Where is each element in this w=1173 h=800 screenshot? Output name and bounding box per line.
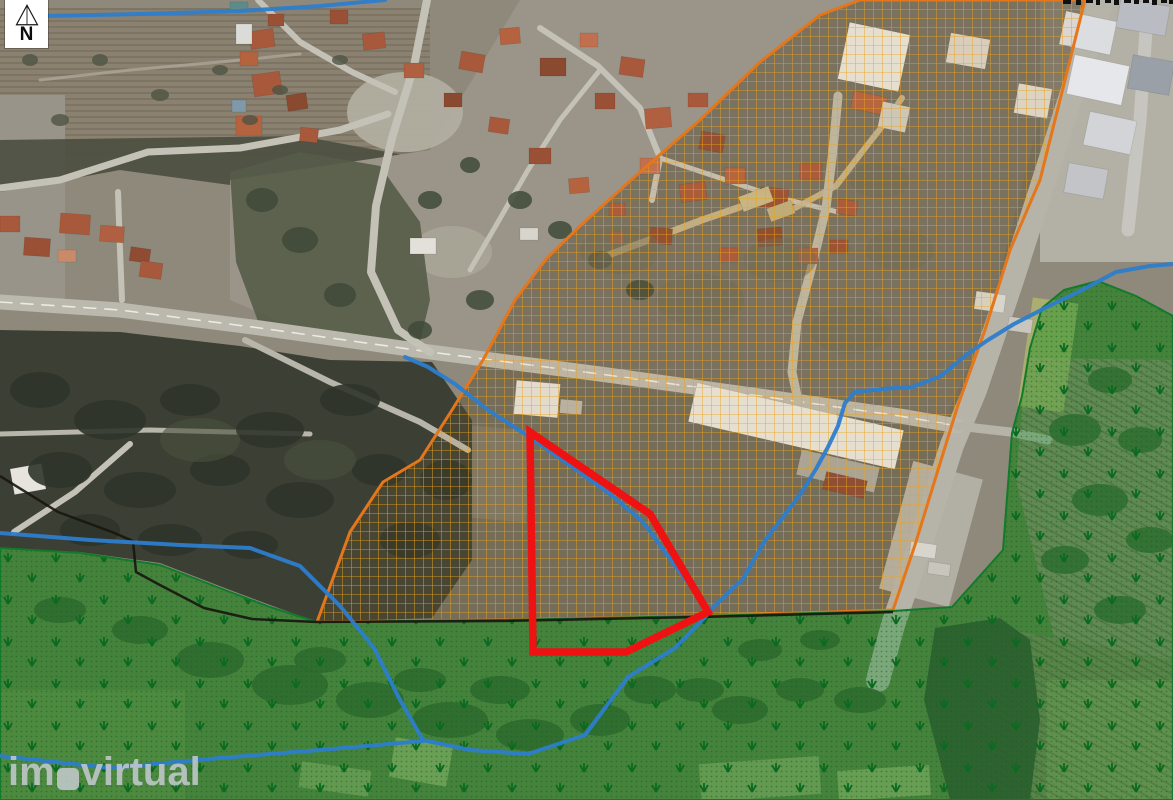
- watermark-o-glyph: [57, 768, 79, 790]
- north-label: N: [20, 25, 34, 44]
- watermark-text-virtual: virtual: [81, 750, 201, 795]
- watermark-text-im: im: [8, 750, 55, 795]
- cropped-label-fragments: [1063, 0, 1173, 5]
- watermark-logo: im virtual: [8, 750, 201, 795]
- aerial-zoning-map-screenshot: N im virtual: [0, 0, 1173, 800]
- north-indicator: N: [5, 0, 48, 48]
- aerial-map-canvas: [0, 0, 1173, 800]
